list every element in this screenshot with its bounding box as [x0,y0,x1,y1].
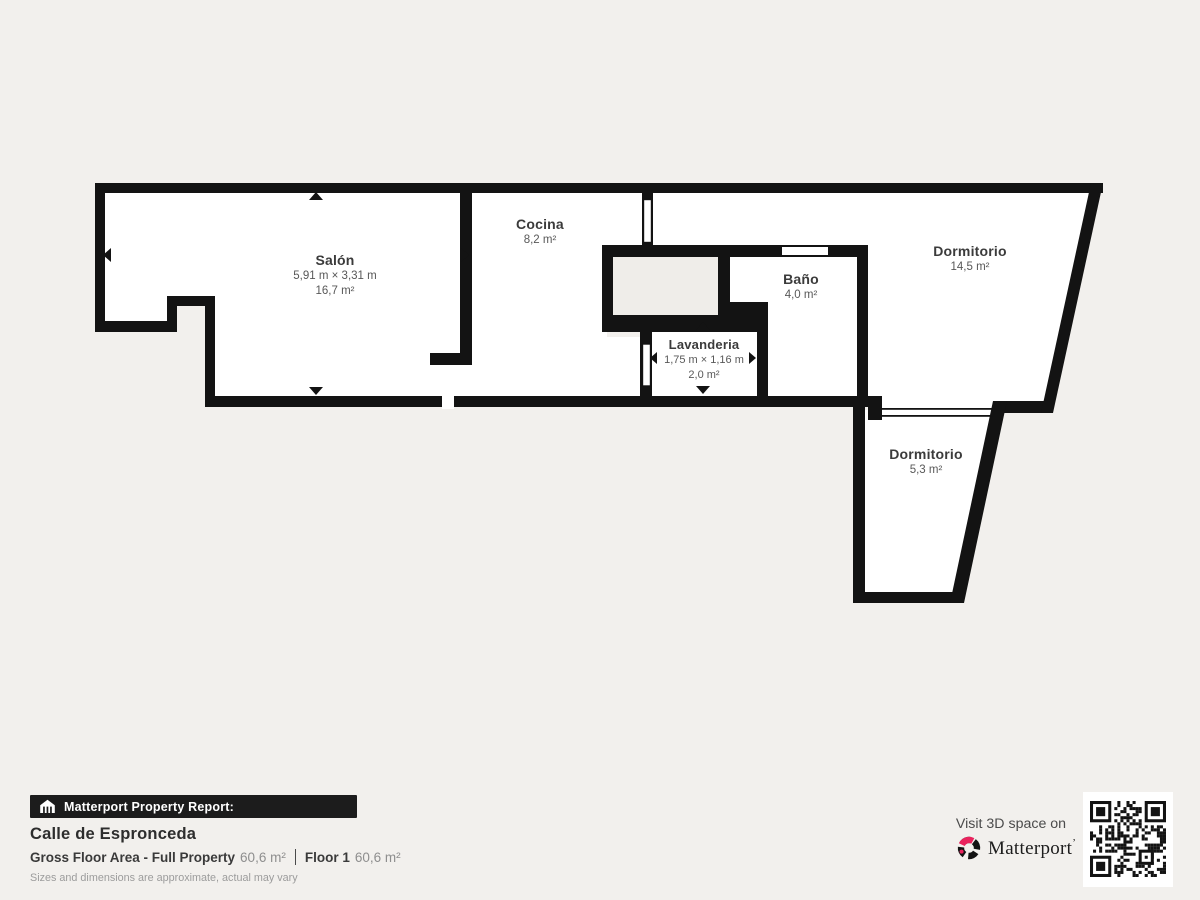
matterport-swirl-icon [956,835,982,861]
matterport-logo: Matterport’ [956,835,1076,861]
visit-3d-space-label: Visit 3D space on [944,816,1078,832]
gross-floor-area-label: Gross Floor Area - Full Property [30,850,235,865]
qr-code [1083,792,1173,887]
house-icon [39,799,56,814]
floor-area-stats: Gross Floor Area - Full Property 60,6 m²… [30,849,401,865]
property-report-page: Salón 5,91 m × 3,31 m 16,7 m² Cocina 8,2… [0,0,1200,900]
room-floors [100,188,1098,598]
gross-floor-area-value: 60,6 m² [240,850,286,865]
floor-plan [0,0,1200,900]
floor-value: 60,6 m² [355,850,401,865]
void-area [608,251,725,323]
report-badge: Matterport Property Report: [30,795,357,818]
report-badge-label: Matterport Property Report: [64,800,234,814]
room-floor-salon [100,188,467,402]
disclaimer-text: Sizes and dimensions are approximate, ac… [30,872,298,884]
entrance-gap [442,365,454,409]
qr-code-pattern [1090,801,1166,877]
matterport-wordmark: Matterport’ [988,837,1076,860]
property-name: Calle de Espronceda [30,825,196,844]
window-opening-icon [782,247,828,255]
door-leaf-icon [643,344,651,386]
door-leaf-icon [644,200,652,243]
brand-trademark-tick: ’ [1072,837,1076,849]
stats-divider [295,849,296,865]
floor-label: Floor 1 [305,850,350,865]
